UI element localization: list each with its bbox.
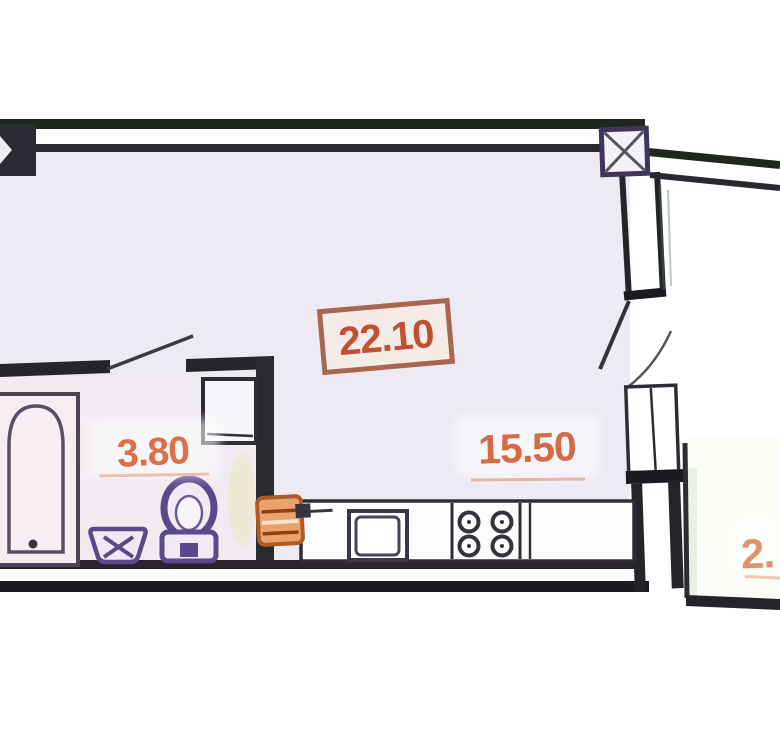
toilet-flush-button: [180, 543, 198, 557]
bottom-wall-outer-line: [0, 581, 649, 592]
main-room-area-label: 22.10: [337, 312, 436, 364]
bathtub: [0, 394, 78, 565]
balcony-left-edge: [685, 443, 687, 598]
bathroom-area-label: 3.80: [116, 429, 190, 476]
floor-plan-drawing: 22.10 15.50 3.80 2.: [0, 0, 780, 750]
bathtub-basin: [9, 406, 63, 552]
door-swing-arc: [629, 331, 671, 386]
bathroom-sink: [90, 529, 145, 562]
kitchen-sink: [349, 511, 407, 560]
top-wall-outer-line: [0, 119, 645, 129]
column-marker-top-left: [0, 124, 36, 176]
bathtub-drain-icon: [29, 540, 38, 549]
kitchen-area-label: 15.50: [477, 423, 576, 472]
top-wall-inner-line: [0, 144, 626, 152]
column-marker-top-right: [601, 128, 648, 175]
scan-smudge: [228, 454, 256, 546]
balcony-door-right-jamb: [668, 480, 684, 588]
floor-plan-canvas: 22.10 15.50 3.80 2.: [0, 0, 780, 750]
wall-end-cap: [624, 292, 666, 296]
toilet: [162, 479, 216, 561]
balcony-area-label: 2.: [740, 529, 775, 577]
kitchen-counter: [301, 501, 634, 561]
main-room-area-box: 22.10: [320, 301, 453, 373]
neighbour-wall: [648, 152, 780, 188]
boiler-valve-icon: [295, 503, 311, 518]
